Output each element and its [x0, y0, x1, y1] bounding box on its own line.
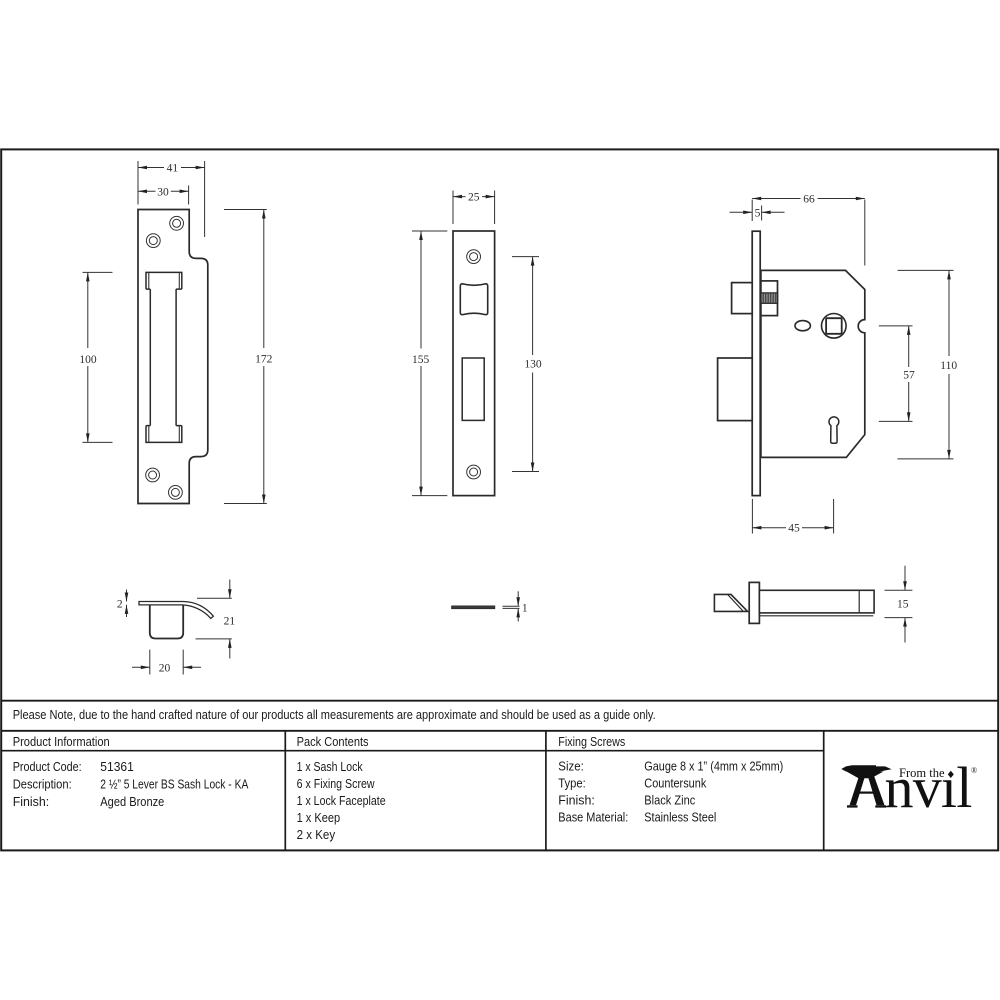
svg-text:41: 41 — [167, 163, 179, 175]
svg-text:2 ½” 5 Lever BS Sash Lock - KA: 2 ½” 5 Lever BS Sash Lock - KA — [100, 777, 249, 791]
svg-text:Finish:: Finish: — [558, 793, 595, 807]
svg-text:2 x Key: 2 x Key — [297, 828, 336, 842]
svg-text:Finish:: Finish: — [13, 795, 50, 809]
svg-text:130: 130 — [524, 359, 542, 371]
svg-text:Base Material:: Base Material: — [558, 810, 628, 824]
svg-text:Aged Bronze: Aged Bronze — [100, 795, 164, 809]
svg-text:110: 110 — [940, 360, 957, 372]
svg-text:21: 21 — [224, 616, 236, 628]
svg-text:Stainless Steel: Stainless Steel — [644, 810, 716, 824]
svg-text:Pack Contents: Pack Contents — [297, 735, 369, 749]
svg-text:1 x Keep: 1 x Keep — [297, 811, 341, 825]
svg-text:Description:: Description: — [13, 777, 72, 791]
svg-text:Fixing Screws: Fixing Screws — [558, 735, 625, 749]
svg-text:20: 20 — [159, 663, 171, 675]
svg-text:155: 155 — [412, 354, 430, 366]
svg-text:Product Information: Product Information — [13, 735, 110, 749]
svg-text:172: 172 — [255, 354, 273, 366]
svg-text:From the: From the — [899, 766, 945, 780]
svg-text:Product Code:: Product Code: — [13, 760, 82, 774]
svg-text:1: 1 — [522, 602, 528, 614]
svg-text:66: 66 — [803, 194, 815, 206]
svg-text:5: 5 — [755, 207, 761, 219]
svg-text:15: 15 — [897, 599, 909, 611]
svg-text:2: 2 — [117, 598, 123, 610]
svg-text:57: 57 — [903, 370, 915, 382]
svg-text:nvıl: nvıl — [885, 755, 972, 820]
svg-text:Black Zinc: Black Zinc — [644, 793, 695, 807]
svg-text:6 x Fixing Screw: 6 x Fixing Screw — [297, 777, 376, 791]
svg-text:Type:: Type: — [558, 776, 586, 790]
svg-text:25: 25 — [468, 192, 480, 204]
svg-text:45: 45 — [788, 523, 800, 535]
svg-text:Gauge 8 x 1” (4mm x 25mm): Gauge 8 x 1” (4mm x 25mm) — [644, 759, 783, 773]
svg-text:Countersunk: Countersunk — [644, 776, 707, 790]
svg-text:1 x Lock Faceplate: 1 x Lock Faceplate — [297, 794, 386, 808]
svg-text:1 x Sash Lock: 1 x Sash Lock — [297, 760, 364, 774]
svg-text:100: 100 — [79, 354, 97, 366]
svg-text:51361: 51361 — [100, 760, 134, 774]
svg-text:®: ® — [971, 766, 977, 775]
svg-text:Size:: Size: — [558, 759, 584, 773]
svg-text:30: 30 — [157, 186, 169, 198]
svg-text:Please Note, due to the hand c: Please Note, due to the hand crafted nat… — [13, 708, 656, 722]
